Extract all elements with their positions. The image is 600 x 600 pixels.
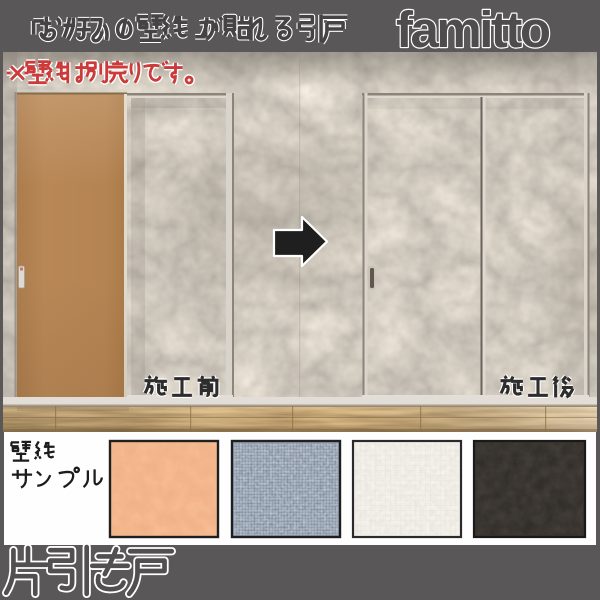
svg-text:famitto: famitto — [396, 1, 550, 58]
